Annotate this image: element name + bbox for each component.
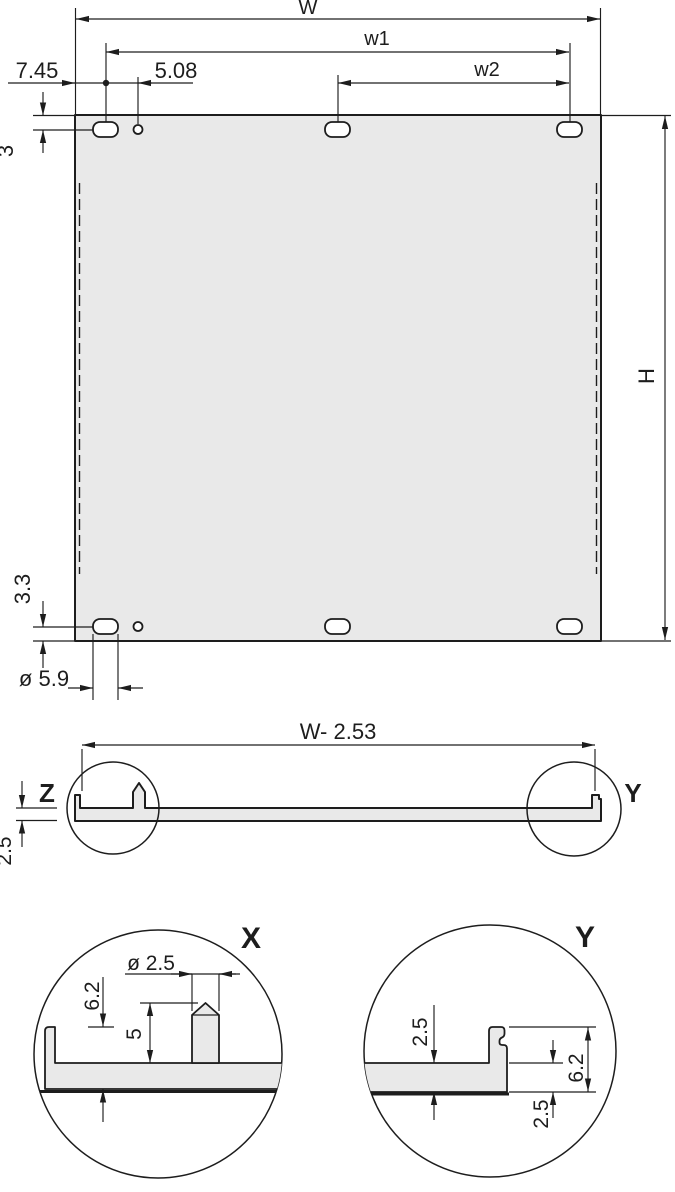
origin-dot [103,80,109,86]
dimension-text-w2: w2 [473,59,500,81]
mounting-slot-top-left [93,122,118,137]
dimension-text-6-2: 6.2 [81,981,104,1010]
dimension-text-2-5-top: 2.5 [409,1017,432,1046]
mounting-slot-bottom-right [557,619,582,634]
dimension-text-w-minus: W- 2.53 [300,719,377,744]
dimension-text-2-5-bottom: 2.5 [530,1099,553,1128]
dimension-thickness-bottom: 2.5 [509,1040,563,1129]
extension-lines [93,634,118,700]
mounting-slot-bottom-middle [325,619,350,634]
panel-edge-profile [45,1027,284,1089]
detail-label-y-section: Y [624,778,641,808]
dimension-h: H [601,116,671,642]
detail-y-geometry [362,1027,509,1094]
dimension-edge-height-x: 6.2 [81,977,114,1122]
dimension-text-3-3: 3.3 [10,574,35,605]
detail-label-y: Y [575,921,595,954]
dimension-pin-height: 5 [123,1003,198,1063]
drawing-canvas: W w1 w2 7.45 5.08 [0,0,675,1192]
dimension-text-5-08: 5.08 [155,58,198,83]
section-view: W- 2.53 Z Y 2.5 [0,719,642,866]
dimension-text-7-45: 7.45 [16,58,59,83]
dimension-w2: w2 [338,59,569,122]
front-view: W w1 w2 7.45 5.08 [0,0,671,700]
dimension-w-minus: W- 2.53 [82,719,595,791]
dimension-text-w: W [299,0,318,19]
mounting-slot-top-right [557,122,582,137]
panel-face [75,115,601,641]
mounting-slot-bottom-left [93,619,118,634]
detail-x-view: ø 2.5 6.2 5 X [34,922,284,1178]
front-panel-technical-drawing: W w1 w2 7.45 5.08 [0,0,675,1192]
dimension-slot-diameter: ø 5.9 [19,634,143,700]
extension-lines [16,808,57,821]
detail-label-x: X [241,922,261,955]
dimension-text-pin-diameter: ø 2.5 [127,952,175,975]
pin-hole-top [134,125,143,134]
dimension-text-w1: w1 [363,28,390,50]
detail-y-view: 2.5 6.2 2.5 Y [362,921,616,1177]
dimension-pin-diameter: ø 2.5 [125,952,240,1011]
pin-hole-bottom [134,622,143,631]
extension-lines [82,749,595,791]
dimension-text-5: 5 [123,1028,146,1040]
detail-label-z: Z [39,778,55,808]
dimension-text-5-9: ø 5.9 [19,666,69,691]
dimension-text-6-2-y: 6.2 [565,1053,588,1082]
dimension-text-2-5: 2.5 [0,836,16,865]
dimension-text-h: H [634,368,659,384]
mounting-slot-top-middle [325,122,350,137]
detail-x-geometry [38,1003,284,1092]
guide-pin [192,1003,219,1063]
panel-section-profile [75,783,601,821]
dimension-text-3: 3 [0,145,18,157]
